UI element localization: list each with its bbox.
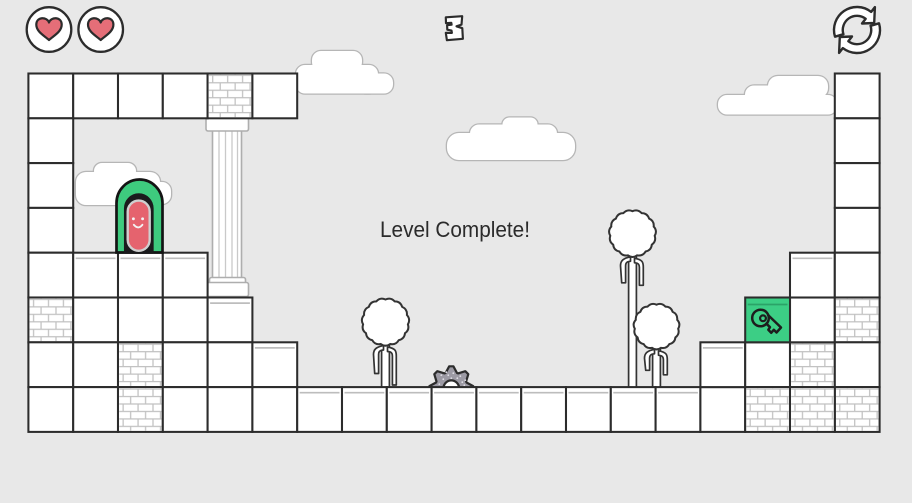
svg-text:Level Complete!: Level Complete!	[380, 217, 530, 242]
